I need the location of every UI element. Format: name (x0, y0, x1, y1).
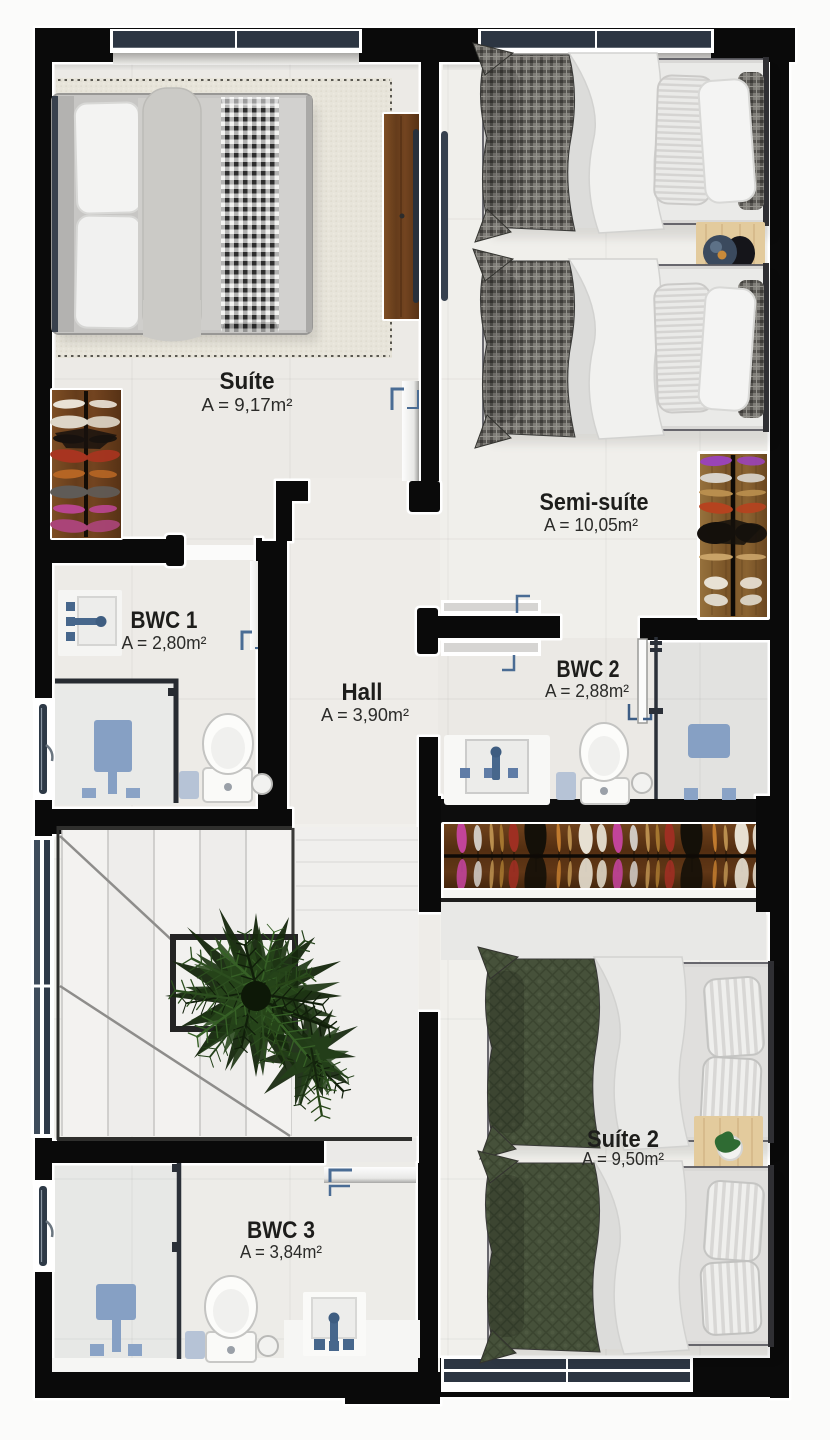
svg-text:A = 9,50m²: A = 9,50m² (582, 1149, 664, 1169)
svg-text:BWC 2: BWC 2 (557, 656, 620, 683)
svg-text:Semi-suíte: Semi-suíte (540, 489, 649, 516)
svg-text:BWC 3: BWC 3 (247, 1217, 315, 1244)
svg-text:A = 2,88m²: A = 2,88m² (545, 681, 629, 701)
svg-text:A = 10,05m²: A = 10,05m² (544, 515, 638, 535)
svg-text:BWC 1: BWC 1 (131, 607, 198, 634)
svg-text:A = 9,17m²: A = 9,17m² (202, 395, 293, 415)
svg-text:A = 2,80m²: A = 2,80m² (122, 633, 207, 653)
svg-text:Hall: Hall (342, 679, 383, 706)
svg-text:A = 3,84m²: A = 3,84m² (240, 1242, 322, 1262)
svg-text:Suíte: Suíte (220, 368, 275, 395)
svg-text:A = 3,90m²: A = 3,90m² (321, 705, 409, 725)
